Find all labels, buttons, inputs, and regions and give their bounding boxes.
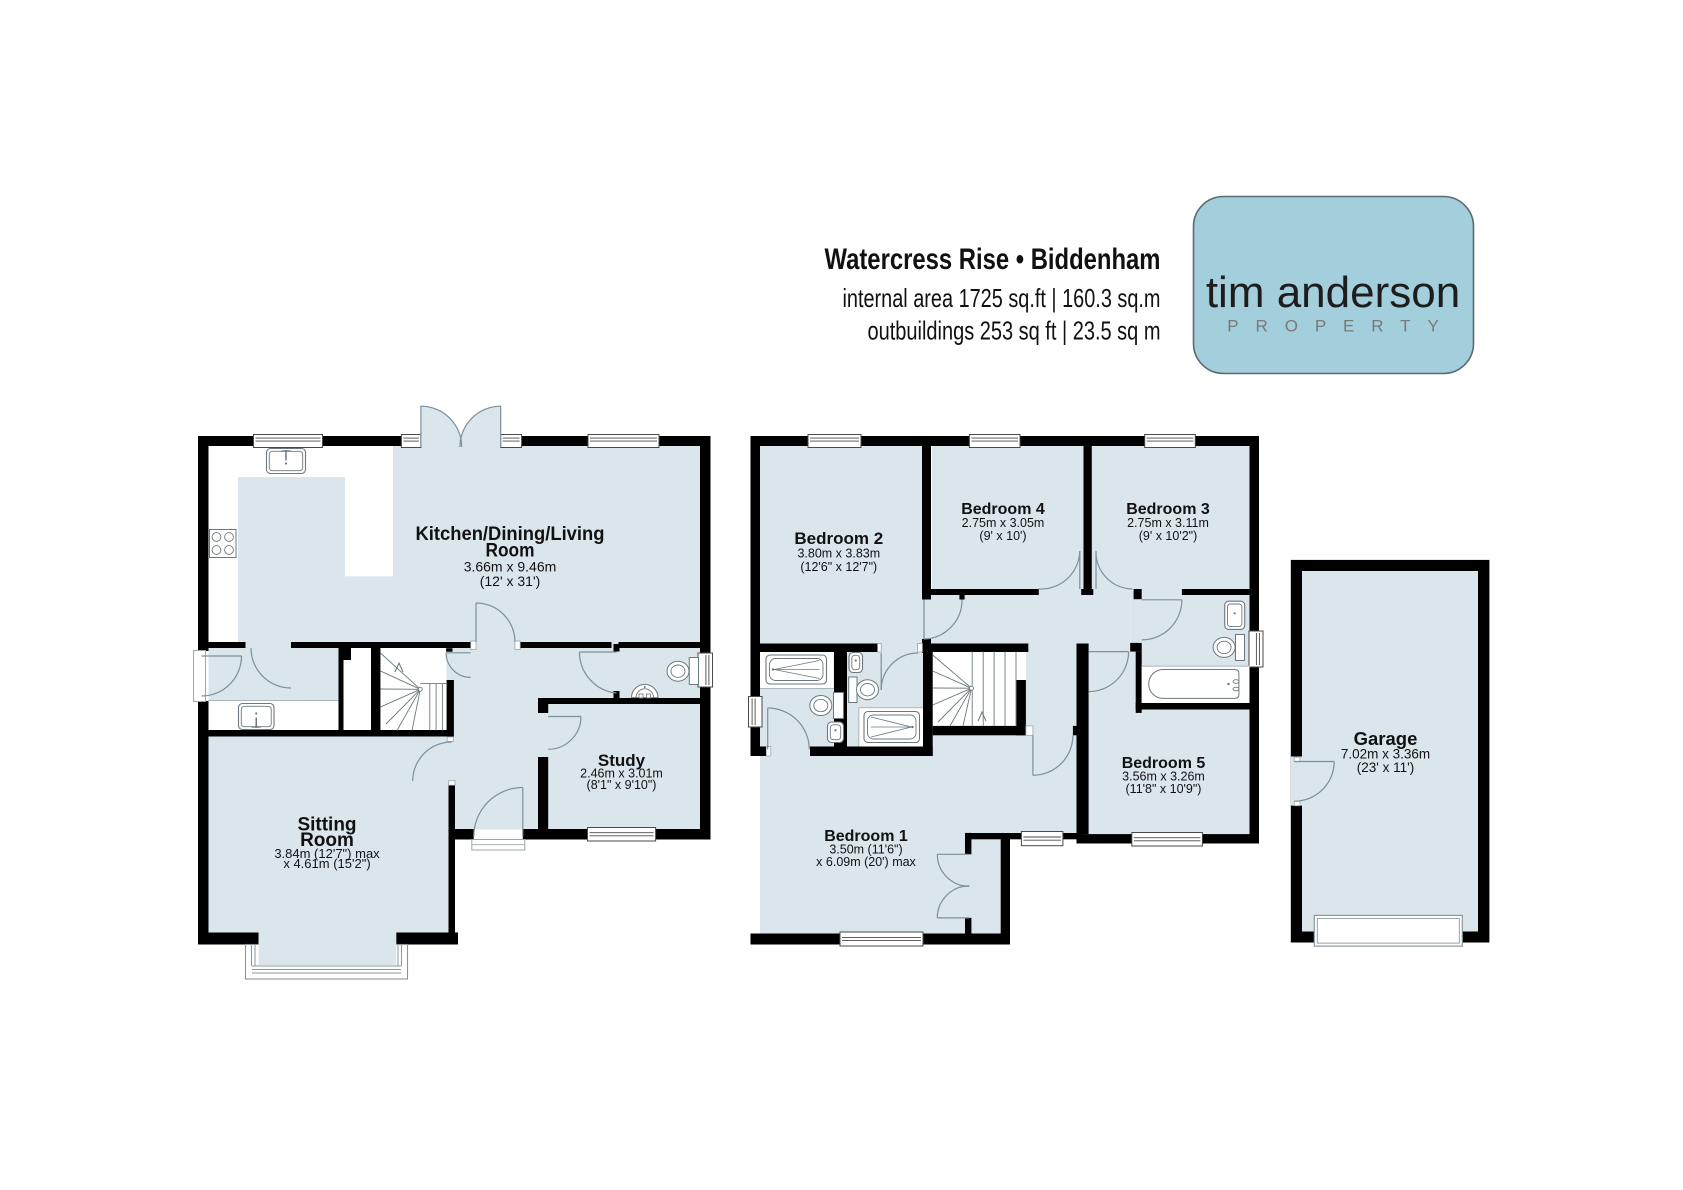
svg-text:x 6.09m (20') max: x 6.09m (20') max bbox=[816, 855, 916, 869]
svg-text:(8'1" x 9'10"): (8'1" x 9'10") bbox=[587, 778, 657, 792]
svg-text:3.80m x 3.83m: 3.80m x 3.83m bbox=[797, 547, 880, 561]
svg-text:(11'8" x 10'9"): (11'8" x 10'9") bbox=[1126, 782, 1202, 796]
svg-text:Bedroom 2: Bedroom 2 bbox=[794, 529, 883, 548]
svg-text:2.75m x 3.11m: 2.75m x 3.11m bbox=[1127, 516, 1209, 530]
svg-text:Watercress Rise • Biddenham: Watercress Rise • Biddenham bbox=[825, 243, 1161, 276]
svg-text:(12' x 31'): (12' x 31') bbox=[480, 573, 541, 589]
svg-text:(12'6" x 12'7"): (12'6" x 12'7") bbox=[800, 560, 877, 574]
svg-text:tim anderson: tim anderson bbox=[1206, 268, 1460, 317]
svg-text:(23' x 11'): (23' x 11') bbox=[1357, 760, 1414, 775]
svg-text:2.75m x 3.05m: 2.75m x 3.05m bbox=[962, 516, 1045, 530]
svg-text:outbuildings 253 sq ft | 23.5: outbuildings 253 sq ft | 23.5 sq m bbox=[868, 316, 1161, 346]
svg-text:(9' x 10'2"): (9' x 10'2") bbox=[1139, 529, 1198, 543]
svg-text:PROPERTY: PROPERTY bbox=[1227, 317, 1455, 336]
svg-text:x 4.61m (15'2"): x 4.61m (15'2") bbox=[283, 856, 370, 871]
svg-text:internal area 1725 sq.ft | 160: internal area 1725 sq.ft | 160.3 sq.m bbox=[843, 283, 1161, 313]
svg-text:(9' x 10'): (9' x 10') bbox=[979, 529, 1026, 543]
